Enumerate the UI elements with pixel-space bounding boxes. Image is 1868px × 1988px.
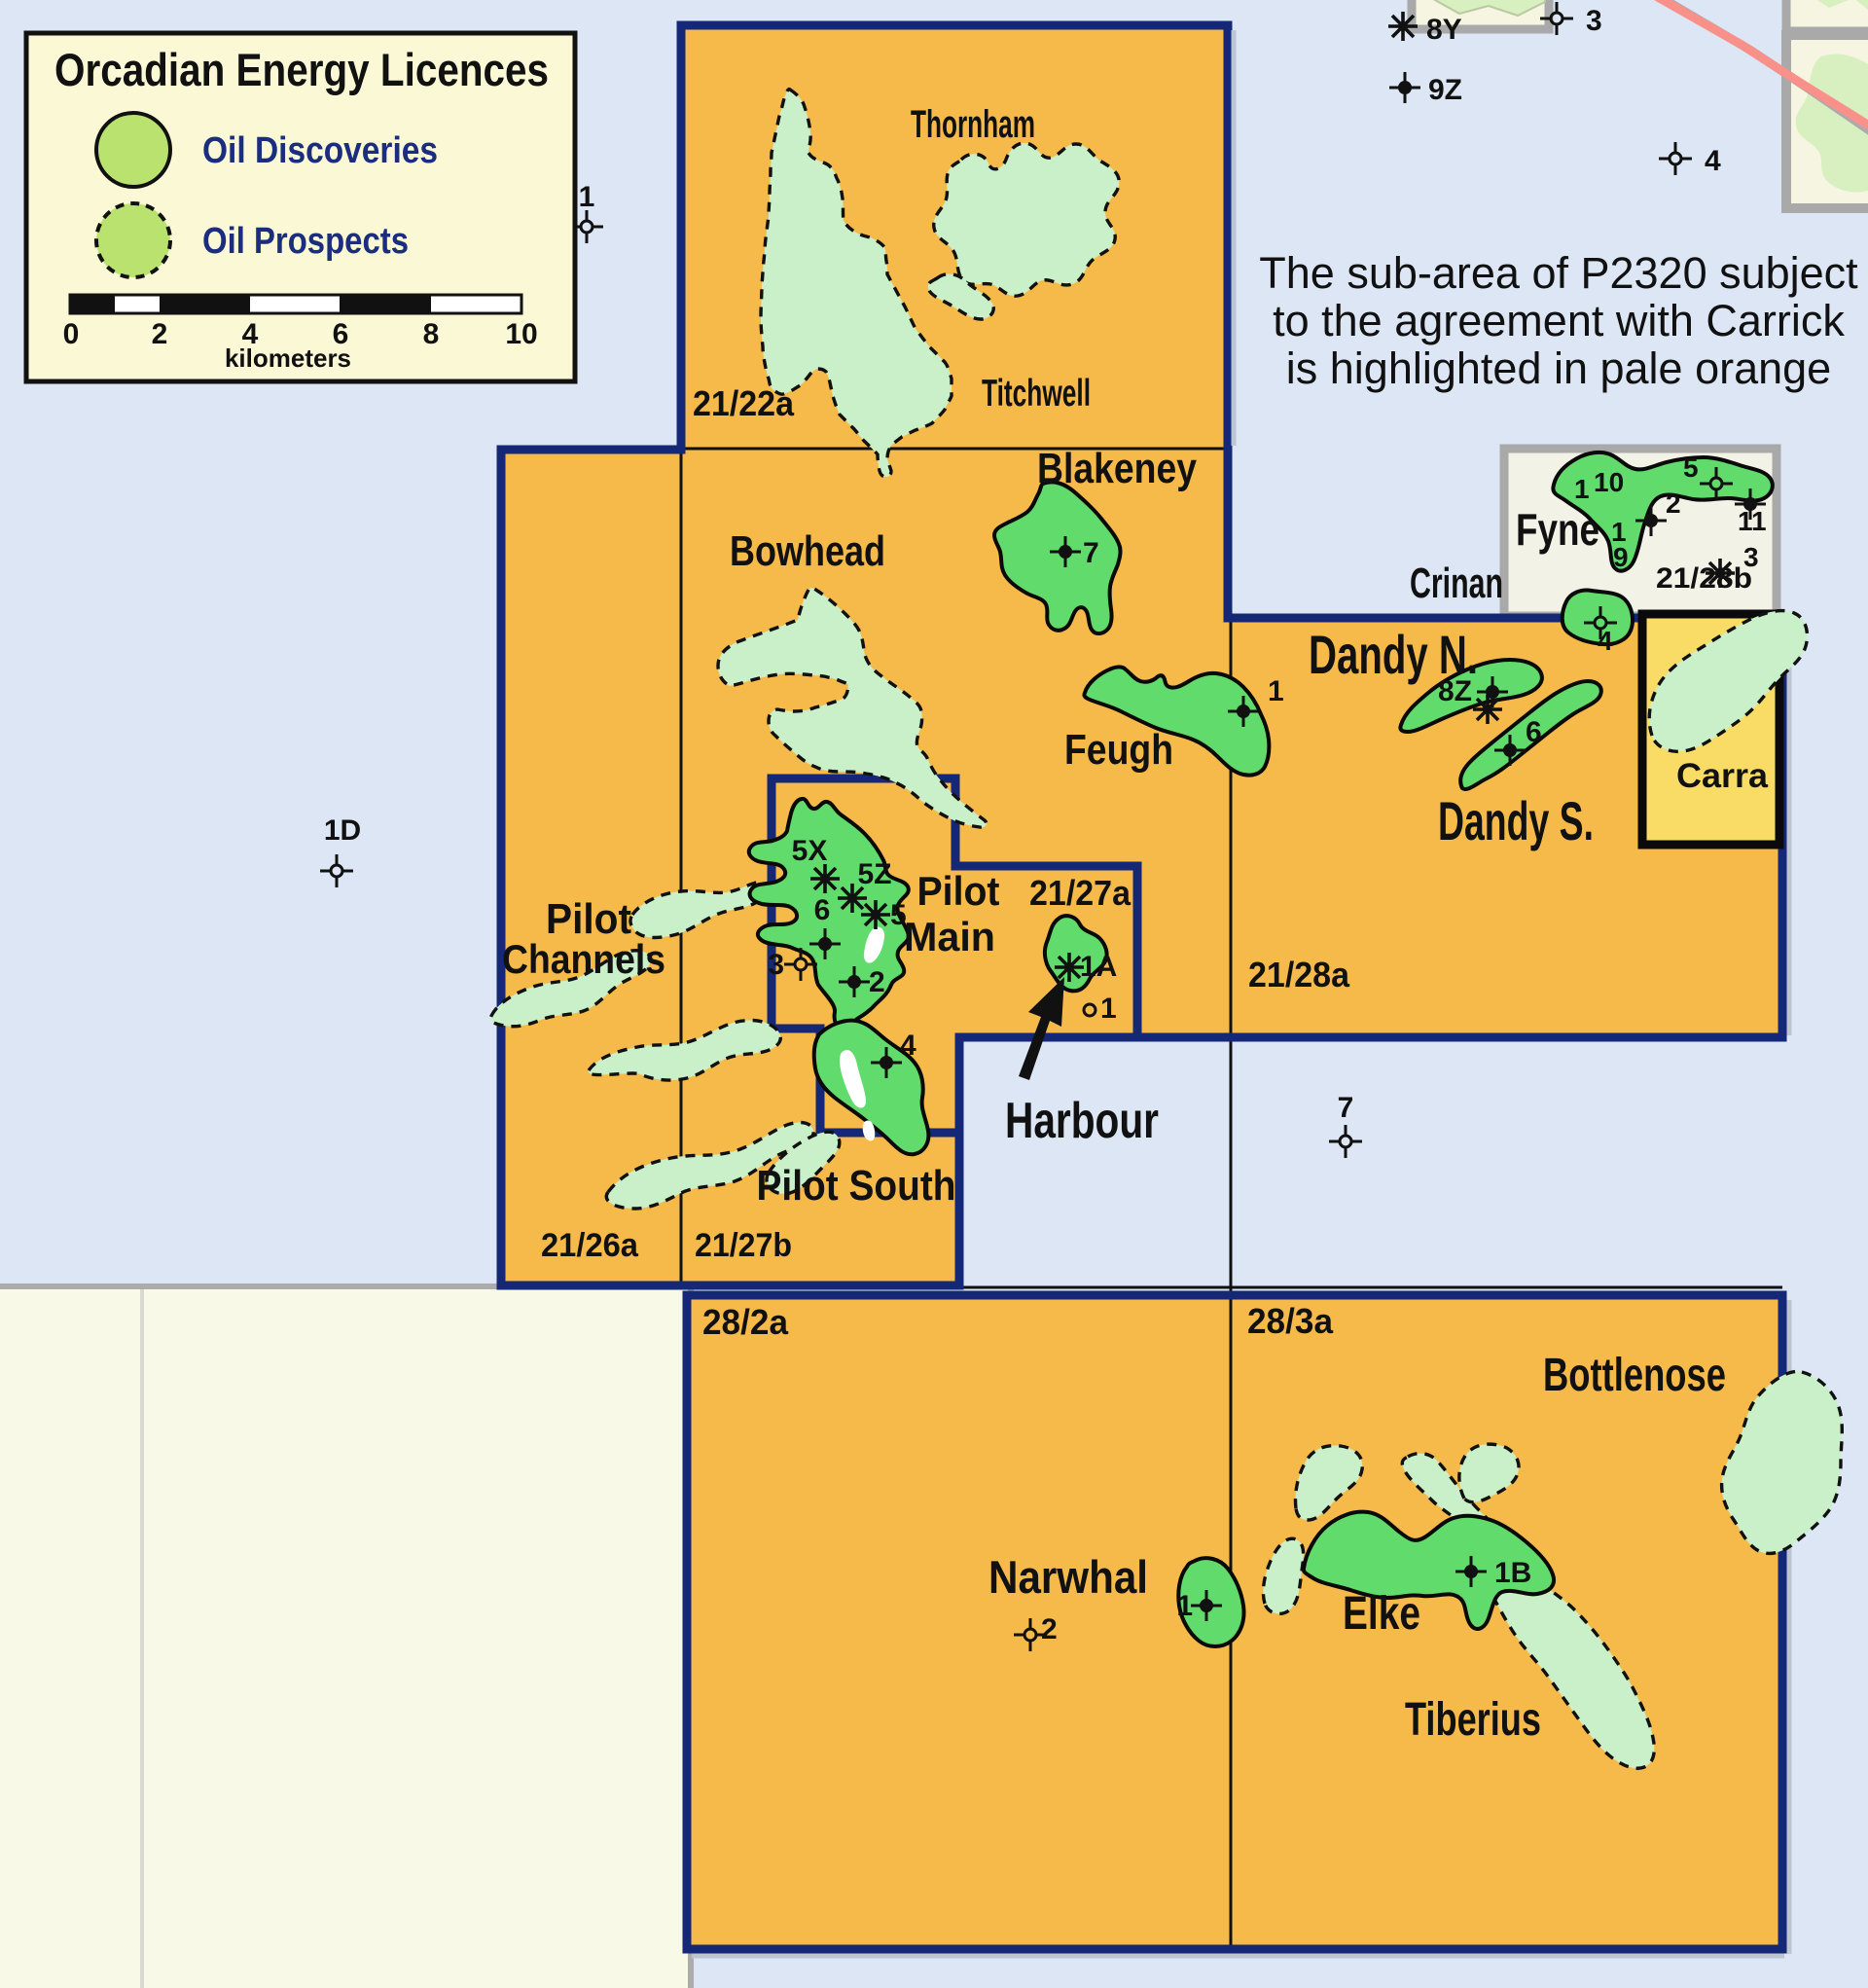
svg-text:3: 3 [768,949,784,981]
svg-text:1D: 1D [324,814,361,847]
svg-text:21/26a: 21/26a [541,1227,639,1264]
svg-text:28/2a: 28/2a [702,1302,789,1342]
svg-text:7: 7 [1083,537,1099,569]
svg-text:5: 5 [1683,452,1699,483]
svg-text:21/28b: 21/28b [1656,562,1752,595]
svg-text:1: 1 [1574,474,1590,504]
svg-text:1: 1 [579,181,595,213]
svg-text:1: 1 [1176,1590,1193,1622]
svg-text:2: 2 [1041,1613,1058,1645]
svg-text:4: 4 [1598,626,1613,656]
svg-text:Fyne: Fyne [1516,504,1599,555]
svg-text:21/27b: 21/27b [695,1227,792,1264]
svg-text:8: 8 [423,318,440,350]
svg-text:kilometers: kilometers [225,343,351,373]
svg-text:4: 4 [900,1030,916,1062]
svg-text:Bottlenose: Bottlenose [1543,1350,1726,1401]
svg-text:5Z: 5Z [857,858,891,890]
svg-text:Dandy S.: Dandy S. [1438,790,1594,851]
svg-text:9: 9 [1613,542,1629,572]
svg-text:Pilot: Pilot [917,868,1000,914]
svg-text:21/28a: 21/28a [1248,955,1350,994]
svg-text:Channels: Channels [502,936,665,982]
svg-text:Dandy N.: Dandy N. [1309,624,1478,685]
svg-text:7: 7 [1338,1092,1354,1124]
svg-text:Harbour: Harbour [1005,1093,1159,1149]
svg-text:1A: 1A [1080,951,1117,983]
svg-text:Blakeney: Blakeney [1037,445,1197,492]
svg-text:Tiberius: Tiberius [1405,1694,1541,1746]
svg-text:Bowhead: Bowhead [730,527,885,575]
svg-text:to the agreement with Carrick: to the agreement with Carrick [1273,296,1845,345]
svg-text:6: 6 [1526,716,1542,748]
svg-text:6: 6 [814,894,831,926]
svg-text:Orcadian Energy Licences: Orcadian Energy Licences [54,44,549,95]
svg-text:21/27a: 21/27a [1029,873,1132,913]
svg-text:Crinan: Crinan [1410,560,1503,607]
svg-text:10: 10 [505,318,537,350]
svg-text:Narwhal: Narwhal [988,1551,1148,1603]
svg-text:is highlighted in pale orange: is highlighted in pale orange [1286,343,1831,393]
svg-text:28/3a: 28/3a [1247,1301,1334,1341]
svg-text:The sub-area of P2320 subject: The sub-area of P2320 subject [1259,248,1858,298]
svg-text:1: 1 [1100,993,1117,1025]
svg-text:2: 2 [869,966,885,998]
svg-text:3: 3 [1586,5,1602,37]
svg-text:0: 0 [63,318,80,350]
svg-text:4: 4 [1705,145,1721,177]
svg-text:Elke: Elke [1343,1588,1420,1640]
svg-text:2: 2 [1666,488,1681,519]
svg-text:Pilot South: Pilot South [757,1162,956,1210]
svg-text:1: 1 [1268,675,1284,707]
svg-text:10: 10 [1594,467,1624,497]
svg-text:Carra: Carra [1676,757,1769,795]
svg-text:Titchwell: Titchwell [982,373,1091,415]
svg-text:9Z: 9Z [1428,74,1462,106]
svg-text:21/22a: 21/22a [693,383,795,423]
svg-text:1B: 1B [1494,1557,1531,1589]
svg-text:Main: Main [904,914,995,959]
svg-text:Oil Discoveries: Oil Discoveries [202,130,438,171]
svg-text:2: 2 [152,318,168,350]
svg-text:Oil Prospects: Oil Prospects [202,221,409,262]
svg-text:Feugh: Feugh [1064,726,1173,774]
svg-text:8Y: 8Y [1426,14,1462,46]
svg-text:5X: 5X [792,835,828,867]
svg-text:Thornham: Thornham [911,103,1035,146]
